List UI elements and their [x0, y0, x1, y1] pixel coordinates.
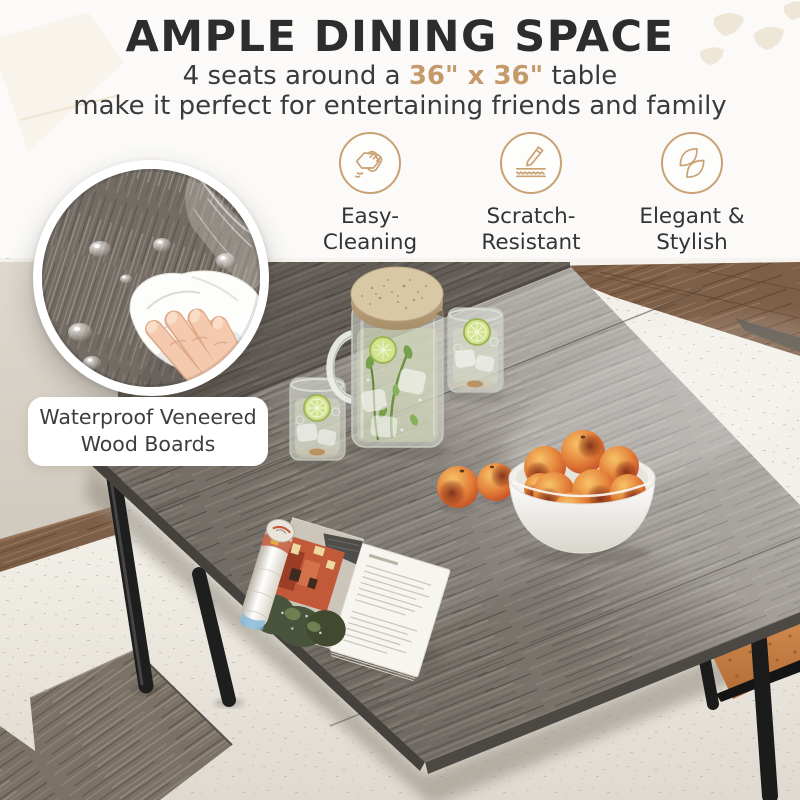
feature-scratch-resistant: Scratch- Resistant — [455, 132, 607, 256]
feature-label: Easy- Cleaning — [294, 204, 446, 256]
subtitle-line2: make it perfect for entertaining friends… — [0, 91, 800, 121]
callout-line2: Wood Boards — [81, 432, 216, 456]
subtitle-line1: 4 seats around a 36" x 36" table — [0, 61, 800, 91]
feature-list: Easy- Cleaning Scratch- Resistant — [294, 132, 768, 256]
cork-lid — [351, 267, 445, 330]
callout-line1: Waterproof Veneered — [39, 405, 256, 429]
subtitle-prefix: 4 seats around a — [183, 61, 409, 91]
feature-easy-cleaning: Easy- Cleaning — [294, 132, 446, 256]
page-title: AMPLE DINING SPACE — [0, 12, 800, 62]
feature-label: Elegant & Stylish — [616, 204, 768, 256]
feature-label: Scratch- Resistant — [455, 204, 607, 256]
scratch-blade-icon — [500, 132, 562, 194]
leaf-pair-icon — [661, 132, 723, 194]
table-size-highlight: 36" x 36" — [409, 61, 543, 91]
waterproof-callout: Waterproof Veneered Wood Boards — [28, 397, 268, 466]
feature-elegant-stylish: Elegant & Stylish — [616, 132, 768, 256]
subtitle-suffix: table — [543, 61, 617, 91]
hand-wipe-icon — [339, 132, 401, 194]
drinking-glass-right — [445, 308, 505, 402]
product-infographic: AMPLE DINING SPACE 4 seats around a 36" … — [0, 0, 800, 800]
waterproof-inset-photo — [33, 160, 269, 396]
